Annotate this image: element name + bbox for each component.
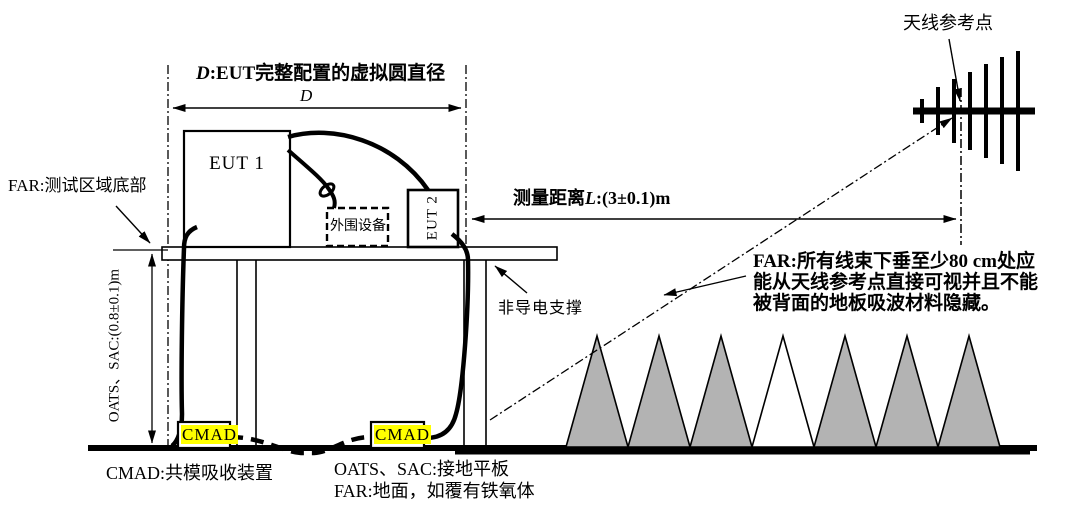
d-title: D:EUT完整配置的虚拟圆直径: [196, 63, 445, 85]
nonconductive-support-arrow: [495, 266, 527, 293]
peripheral-label: 外围设备: [328, 219, 388, 235]
d-title-rest: :EUT完整配置的虚拟圆直径: [210, 63, 445, 84]
emc-test-setup-diagram: D:EUT完整配置的虚拟圆直径 D FAR:测试区域底部 EUT 1 EUT 2…: [0, 0, 1073, 510]
absorber-cone-5: [814, 336, 876, 447]
absorber-cone-3: [690, 336, 752, 447]
eut1-box: [184, 131, 290, 247]
height-dimension-label: OATS、SAC:(0.8±0.1)m: [106, 251, 123, 441]
d-symbol: D: [300, 86, 312, 106]
absorber-cone-4: [752, 336, 814, 447]
measure-prefix: 测量距离: [513, 188, 585, 208]
legend-cmad: CMAD:共模吸收装置: [106, 463, 273, 484]
far-note: FAR:所有线束下垂至少80 cm处应 能从天线参考点直接可视并且不能 被背面的…: [753, 251, 1038, 314]
antenna-ref-label: 天线参考点: [903, 13, 993, 34]
absorber-cone-1: [566, 336, 628, 447]
nonconductive-support-label: 非导电支撑: [498, 300, 583, 318]
cable-eut1-to-peripheral: [288, 150, 335, 208]
absorber-cone-2: [628, 336, 690, 447]
far-test-area-arrow: [116, 206, 150, 243]
measure-distance-label: 测量距离L:(3±0.1)m: [513, 188, 670, 209]
antenna: [913, 51, 1035, 171]
legend-far-ground: FAR:地面，如覆有铁氧体: [334, 481, 535, 502]
cmad2-label: CMAD: [374, 425, 431, 445]
eut2-label: EUT 2: [424, 188, 441, 248]
d-title-variable: D: [196, 63, 210, 84]
cable-eut1-to-eut2: [288, 133, 428, 190]
measure-value: :(3±0.1)m: [596, 188, 670, 208]
measure-variable: L: [585, 188, 596, 208]
far-note-line-3: 被背面的地板吸波材料隐藏。: [753, 293, 1038, 314]
legend-oats-sac: OATS、SAC:接地平板: [334, 459, 509, 480]
absorber-cone-6: [876, 336, 938, 447]
far-test-area-label: FAR:测试区域底部: [8, 176, 147, 196]
absorber-cone-7: [938, 336, 1000, 447]
cmad1-label: CMAD: [181, 425, 238, 445]
cmad1-text: CMAD: [181, 425, 238, 444]
cmad2-text: CMAD: [374, 425, 431, 444]
cable-eut2-to-cmad2: [426, 234, 468, 438]
far-note-line-2: 能从天线参考点直接可视并且不能: [753, 272, 1038, 293]
far-note-line-1: FAR:所有线束下垂至少80 cm处应: [753, 251, 1038, 272]
table-top: [162, 247, 557, 260]
eut1-label: EUT 1: [184, 153, 290, 175]
